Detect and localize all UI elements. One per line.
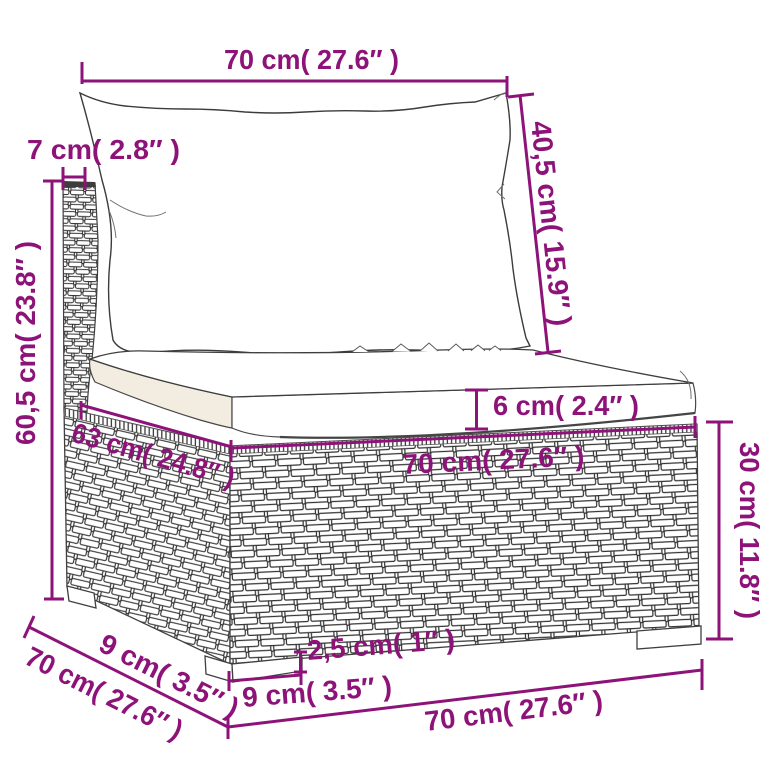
svg-text:30 cm( 11.8″ ): 30 cm( 11.8″ )	[734, 442, 765, 619]
svg-text:70 cm( 27.6″ ): 70 cm( 27.6″ )	[224, 44, 399, 75]
svg-text:60,5 cm( 23.8″ ): 60,5 cm( 23.8″ )	[10, 241, 41, 445]
svg-text:7 cm( 2.8″ ): 7 cm( 2.8″ )	[27, 134, 180, 165]
svg-text:6 cm( 2.4″ ): 6 cm( 2.4″ )	[493, 390, 639, 421]
